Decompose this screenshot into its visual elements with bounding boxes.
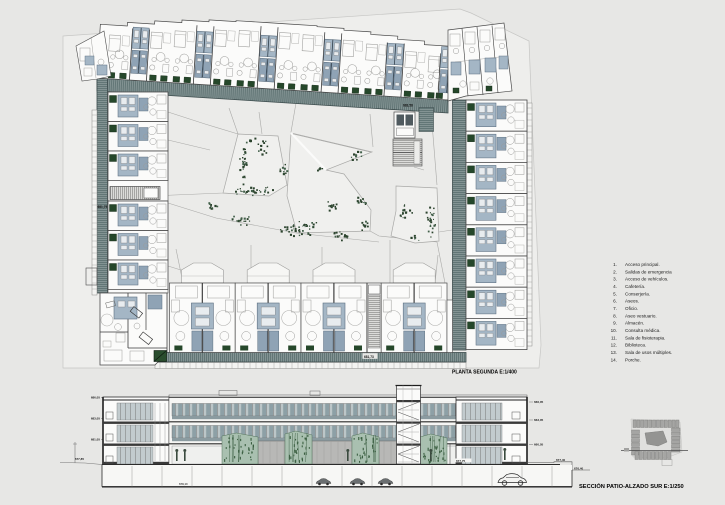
svg-text:Biblioteca.: Biblioteca. (625, 343, 646, 348)
svg-text:677,85: 677,85 (75, 457, 85, 461)
svg-text:Aseo vestuario.: Aseo vestuario. (625, 313, 657, 318)
svg-text:683,58: 683,58 (403, 104, 413, 108)
svg-text:1.: 1. (613, 262, 617, 267)
svg-text:6.: 6. (613, 299, 617, 304)
svg-text:8.: 8. (613, 313, 617, 318)
svg-text:11.: 11. (611, 335, 617, 340)
svg-text:2.: 2. (613, 269, 617, 274)
svg-text:Salidas de emergencia: Salidas de emergencia (625, 269, 672, 274)
svg-text:PLANTA SEGUNDA E:1/400: PLANTA SEGUNDA E:1/400 (452, 370, 517, 376)
svg-text:3.: 3. (613, 277, 617, 282)
svg-text:12.: 12. (611, 343, 617, 348)
svg-text:14.: 14. (611, 357, 617, 362)
svg-text:Aseos.: Aseos. (625, 299, 639, 304)
svg-text:Conserjería.: Conserjería. (625, 291, 650, 296)
svg-text:Oficio.: Oficio. (625, 306, 638, 311)
svg-text:Acceso de vehículos.: Acceso de vehículos. (625, 277, 668, 282)
svg-text:660,05: 660,05 (534, 443, 544, 447)
svg-text:Consulta médica.: Consulta médica. (625, 328, 661, 333)
svg-text:4.: 4. (613, 284, 617, 289)
svg-text:666,05: 666,05 (534, 400, 544, 404)
svg-text:681,05: 681,05 (91, 438, 101, 442)
svg-text:10.: 10. (611, 328, 617, 333)
svg-text:Almacén.: Almacén. (625, 321, 644, 326)
svg-text:681,73: 681,73 (364, 355, 374, 359)
svg-text:SECCIÓN PATIO-ALZADO SUR E:1/: SECCIÓN PATIO-ALZADO SUR E:1/250 (579, 482, 684, 490)
svg-text:7.: 7. (613, 306, 617, 311)
svg-text:686,05: 686,05 (91, 396, 101, 400)
svg-text:677,75: 677,75 (456, 459, 466, 463)
svg-text:13.: 13. (611, 350, 617, 355)
svg-text:Porche.: Porche. (625, 357, 641, 362)
svg-text:683,05: 683,05 (91, 417, 101, 421)
svg-text:663,05: 663,05 (534, 418, 544, 422)
svg-text:Sala de usos múltiples.: Sala de usos múltiples. (625, 350, 672, 355)
svg-text:677,40: 677,40 (556, 458, 566, 462)
svg-text:676,40: 676,40 (574, 466, 584, 470)
svg-text:5.: 5. (613, 291, 617, 296)
svg-text:678,10: 678,10 (179, 482, 188, 486)
svg-text:Acceso principal.: Acceso principal. (625, 262, 660, 267)
svg-text:9.: 9. (613, 321, 617, 326)
svg-text:Sala de fisioterapia.: Sala de fisioterapia. (625, 335, 665, 340)
svg-text:Cafetería.: Cafetería. (625, 284, 645, 289)
svg-text:681,75: 681,75 (98, 205, 108, 209)
